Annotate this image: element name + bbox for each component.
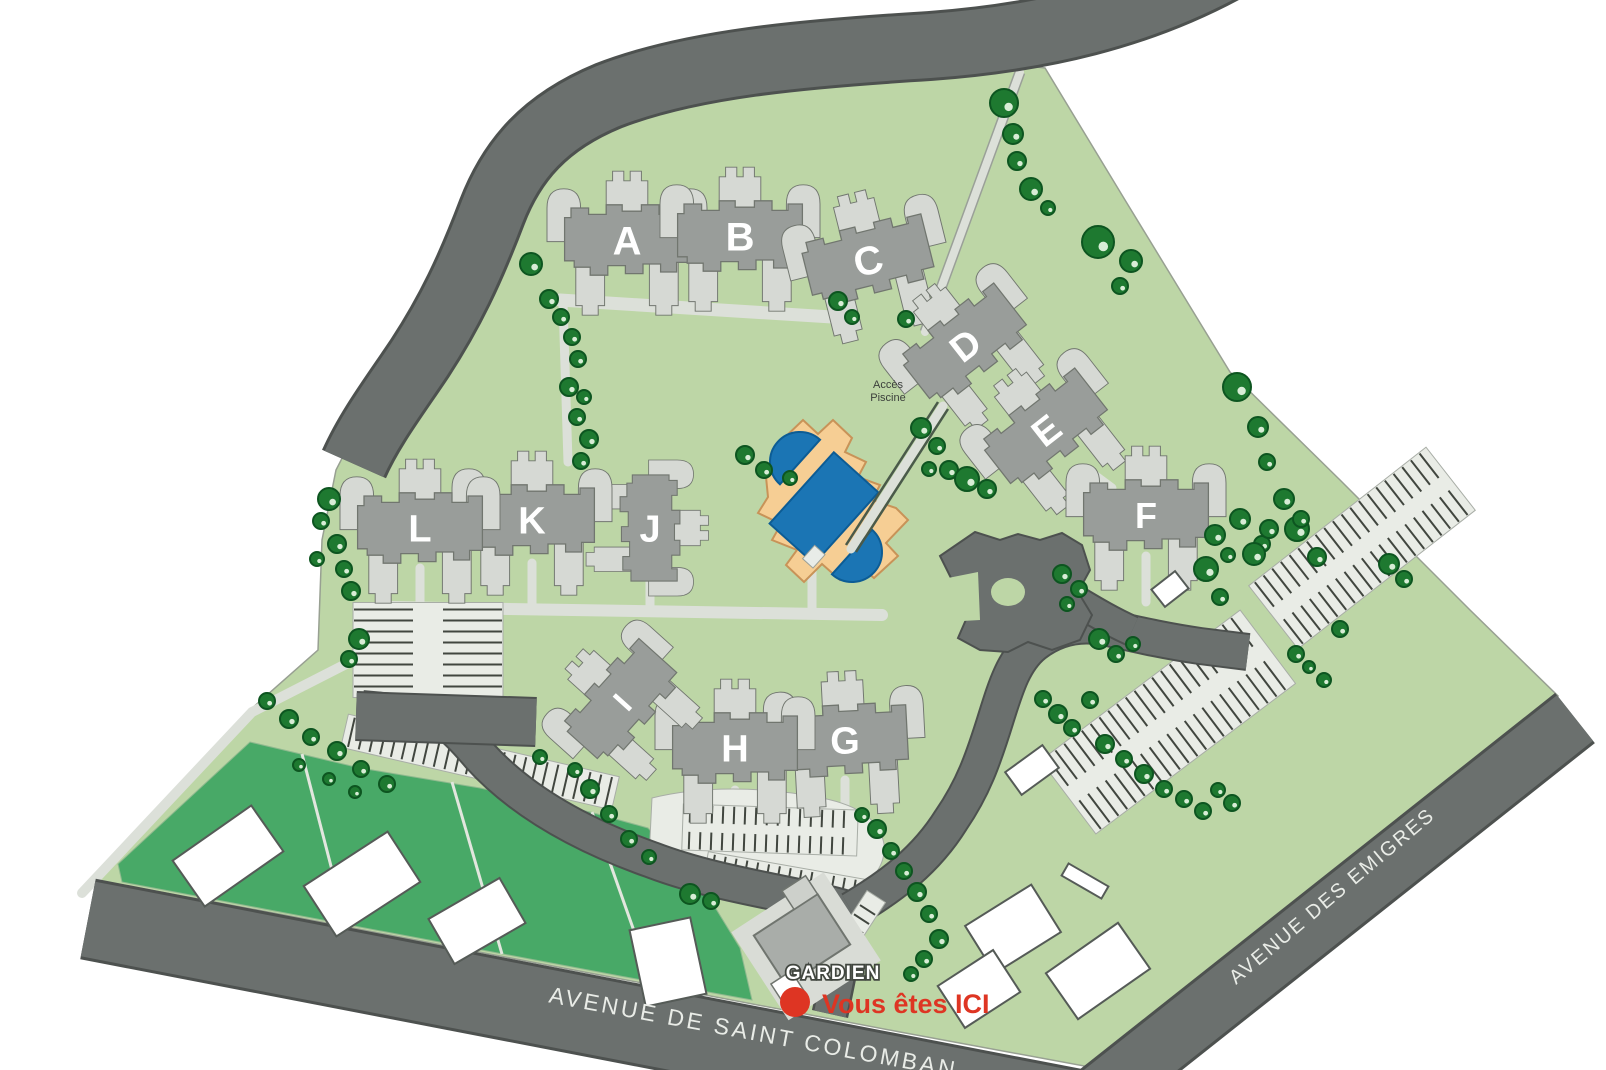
tree-icon [533,750,547,764]
tree-icon [855,808,869,822]
tree-icon [303,729,319,745]
tree-icon [1060,597,1074,611]
tree-icon [1035,691,1051,707]
tree-icon [568,763,582,777]
tree-icon [1224,795,1240,811]
you-are-here-label: Vous êtes ICI [822,989,990,1019]
tree-icon [349,786,361,798]
tree-icon [955,467,979,491]
tree-icon [1096,735,1114,753]
tree-icon [1274,489,1294,509]
tree-icon [621,831,637,847]
tree-icon [341,651,357,667]
tree-icon [564,329,580,345]
tree-icon [560,378,578,396]
tree-icon [921,906,937,922]
tree-icon [1317,673,1331,687]
tree-icon [323,773,335,785]
tree-icon [577,390,591,404]
tree-icon [829,292,847,310]
tree-icon [868,820,886,838]
tree-icon [1112,278,1128,294]
tree-icon [1230,509,1250,529]
tree-icon [569,409,585,425]
site-plan-page: ABCDEFGHIJKL Accès Piscine GARDIEN Vous … [0,0,1606,1070]
you-are-here-dot [780,987,810,1017]
tree-icon [581,780,599,798]
tree-icon [1259,454,1275,470]
tree-icon [680,884,700,904]
tree-icon [1221,548,1235,562]
building-label-b: B [726,215,755,259]
tree-icon [1120,250,1142,272]
tree-icon [1064,720,1080,736]
tree-icon [336,561,352,577]
tree-icon [573,453,589,469]
tree-icon [1082,692,1098,708]
tree-icon [1020,178,1042,200]
tree-icon [379,776,395,792]
tree-icon [349,629,369,649]
tree-icon [1041,201,1055,215]
tree-icon [1108,646,1124,662]
pool-access-label-line2: Piscine [870,392,905,404]
tree-icon [883,843,899,859]
tree-icon [310,552,324,566]
tree-icon [342,582,360,600]
tree-icon [601,806,617,822]
tree-icon [1126,637,1140,651]
building-label-l: L [408,509,431,551]
tree-icon [911,418,931,438]
tree-icon [1194,557,1218,581]
tree-icon [353,761,369,777]
tree-icon [1396,571,1412,587]
tree-icon [1288,646,1304,662]
tree-icon [990,89,1018,117]
tree-icon [845,310,859,324]
tree-icon [318,488,340,510]
tree-icon [1379,554,1399,574]
tree-icon [1082,226,1114,258]
tree-icon [293,759,305,771]
tree-icon [1212,589,1228,605]
tree-icon [313,513,329,529]
tree-icon [1156,781,1172,797]
tree-icon [1308,548,1326,566]
tree-icon [540,290,558,308]
tree-icon [930,930,948,948]
tree-icon [642,850,656,864]
tree-icon [898,311,914,327]
tree-icon [1176,791,1192,807]
west-parking-road [356,716,536,722]
tree-icon [1008,152,1026,170]
tree-icon [896,863,912,879]
pool-access-label-line1: Accès [873,379,903,391]
tree-icon [756,462,772,478]
building-label-j: J [639,509,660,551]
tree-icon [1049,705,1067,723]
tree-icon [1116,751,1132,767]
tree-icon [1089,629,1109,649]
parking-lot-1 [353,603,503,698]
building-label-a: A [613,219,642,263]
building-label-f: F [1135,495,1157,536]
tree-icon [922,462,936,476]
tree-icon [1223,373,1251,401]
tree-icon [1332,621,1348,637]
tree-icon [580,430,598,448]
tree-icon [703,893,719,909]
tree-icon [328,535,346,553]
tree-icon [978,480,996,498]
tree-icon [553,309,569,325]
tree-icon [904,967,918,981]
tree-icon [1135,765,1153,783]
tree-icon [1071,581,1087,597]
tree-icon [1211,783,1225,797]
tree-icon [520,253,542,275]
building-label-g: G [830,721,860,763]
tree-icon [1205,525,1225,545]
tree-icon [1243,543,1265,565]
tree-icon [1053,565,1071,583]
tree-icon [908,883,926,901]
tree-icon [1260,520,1278,538]
tree-icon [280,710,298,728]
caretaker-label: GARDIEN [786,963,881,984]
tree-icon [736,446,754,464]
building-label-k: K [518,501,546,543]
tree-icon [1003,124,1023,144]
tree-icon [916,951,932,967]
site-plan-map: ABCDEFGHIJKL Accès Piscine GARDIEN Vous … [0,0,1606,1070]
tree-icon [570,351,586,367]
tree-icon [1195,803,1211,819]
tree-icon [328,742,346,760]
building-label-h: H [721,729,748,771]
tree-icon [1303,661,1315,673]
tree-icon [929,438,945,454]
tree-icon [259,693,275,709]
tree-icon [1293,511,1309,527]
tree-icon [1248,417,1268,437]
tree-icon [783,471,797,485]
